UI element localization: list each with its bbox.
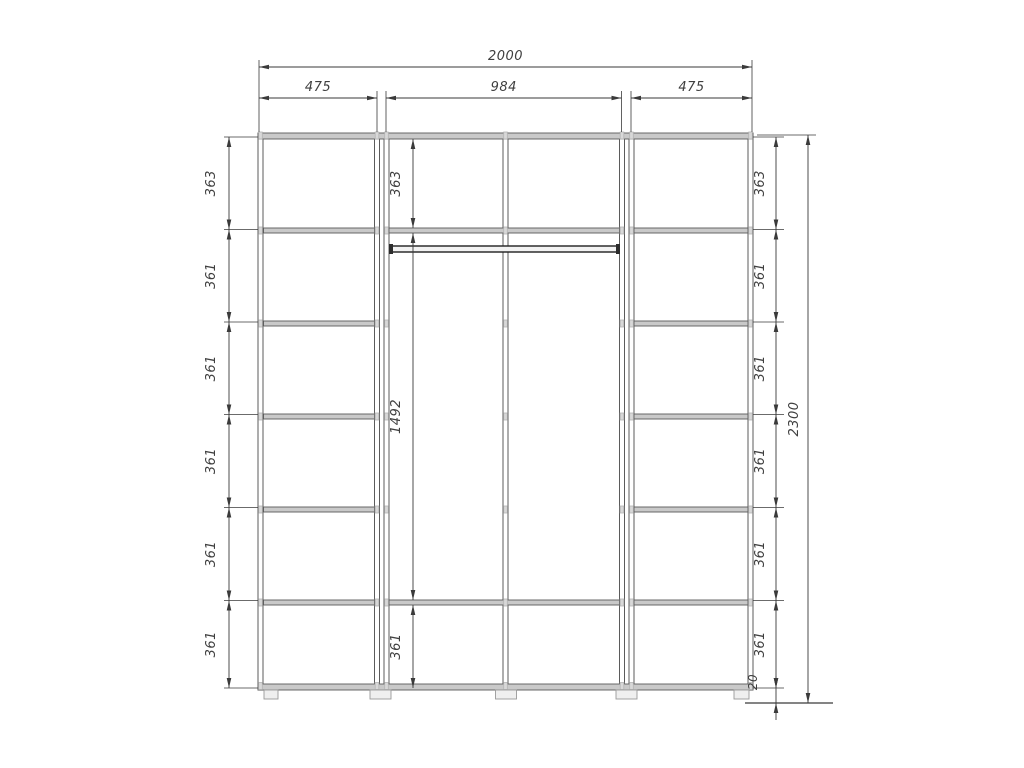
cam-fitting (749, 506, 753, 513)
cam-fitting (504, 320, 508, 327)
dim-label: 475 (678, 80, 704, 95)
dim-label: 475 (305, 80, 331, 95)
cam-fitting (630, 227, 634, 234)
cam-fitting (630, 413, 634, 420)
dim-label: 361 (204, 355, 219, 381)
cam-fitting (620, 413, 624, 420)
cam-fitting (749, 132, 753, 139)
cam-fitting (385, 599, 389, 606)
dim-label: 361 (753, 263, 768, 289)
cam-fitting (504, 506, 508, 513)
dim-label: 20 (746, 674, 760, 690)
vertical-panel (629, 133, 634, 690)
cam-fitting (385, 413, 389, 420)
canvas-background (0, 0, 1024, 768)
foot (734, 690, 749, 699)
cam-fitting (620, 320, 624, 327)
cam-fitting (630, 506, 634, 513)
cam-fitting (385, 227, 389, 234)
dim-label: 361 (389, 633, 404, 659)
cam-fitting (620, 683, 624, 690)
cam-fitting (620, 506, 624, 513)
rod-bracket-left (389, 244, 393, 254)
cam-fitting (749, 320, 753, 327)
cam-fitting (504, 132, 508, 139)
shelf-left (264, 321, 375, 326)
shelf-right (634, 507, 748, 512)
cam-fitting (259, 320, 263, 327)
cam-fitting (375, 227, 379, 234)
cam-fitting (259, 506, 263, 513)
cam-fitting (375, 413, 379, 420)
shelf-right (634, 600, 748, 605)
wardrobe-dimension-drawing: 2000475984475363361361361361361363149236… (0, 0, 1024, 768)
cam-fitting (385, 132, 389, 139)
dim-label: 361 (204, 631, 219, 657)
cam-fitting (620, 132, 624, 139)
foot (616, 690, 637, 699)
cam-fitting (259, 683, 263, 690)
vertical-panel (375, 133, 380, 690)
vertical-panel (503, 133, 508, 690)
dim-label: 361 (753, 355, 768, 381)
cam-fitting (504, 599, 508, 606)
cam-fitting (630, 683, 634, 690)
cam-fitting (375, 683, 379, 690)
shelf-left (264, 600, 375, 605)
dim-label: 361 (204, 541, 219, 567)
cam-fitting (749, 599, 753, 606)
dim-label: 2000 (488, 49, 523, 64)
cam-fitting (620, 599, 624, 606)
dim-label: 363 (204, 170, 219, 196)
cam-fitting (259, 413, 263, 420)
cam-fitting (259, 599, 263, 606)
dim-label: 361 (753, 448, 768, 474)
vertical-panel (620, 133, 625, 690)
technical-drawing-page: 2000475984475363361361361361361363149236… (0, 0, 1024, 768)
cam-fitting (385, 506, 389, 513)
dim-label: 363 (753, 170, 768, 196)
cam-fitting (259, 132, 263, 139)
shelf-left (264, 507, 375, 512)
shelf-left (264, 228, 375, 233)
cam-fitting (630, 132, 634, 139)
cam-fitting (385, 683, 389, 690)
foot (264, 690, 278, 699)
cam-fitting (504, 683, 508, 690)
cam-fitting (375, 320, 379, 327)
dim-label: 1492 (389, 399, 404, 434)
cam-fitting (259, 227, 263, 234)
shelf-right (634, 414, 748, 419)
cam-fitting (630, 599, 634, 606)
dim-label: 2300 (787, 401, 802, 436)
vertical-panel (258, 133, 263, 690)
foot (496, 690, 517, 699)
cam-fitting (749, 413, 753, 420)
foot (370, 690, 391, 699)
cam-fitting (749, 227, 753, 234)
cam-fitting (375, 599, 379, 606)
cam-fitting (630, 320, 634, 327)
cam-fitting (504, 413, 508, 420)
cam-fitting (375, 132, 379, 139)
dim-label: 361 (753, 541, 768, 567)
vertical-panel (748, 133, 753, 690)
dim-label: 984 (491, 80, 517, 95)
rod-bracket-right (616, 244, 620, 254)
hanging-rod (392, 246, 617, 252)
dim-label: 361 (204, 448, 219, 474)
dim-label: 361 (753, 631, 768, 657)
shelf-right (634, 321, 748, 326)
dim-label: 363 (389, 170, 404, 196)
cam-fitting (504, 227, 508, 234)
cam-fitting (620, 227, 624, 234)
cam-fitting (375, 506, 379, 513)
shelf-right (634, 228, 748, 233)
shelf-left (264, 414, 375, 419)
cam-fitting (385, 320, 389, 327)
dim-label: 361 (204, 263, 219, 289)
